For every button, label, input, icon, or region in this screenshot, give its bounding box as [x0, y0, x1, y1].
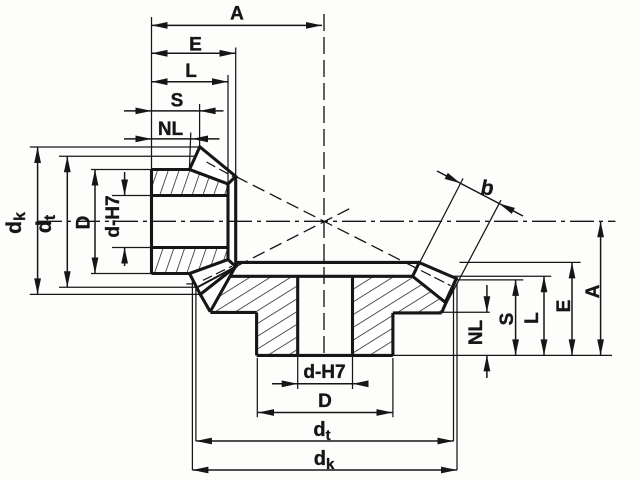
svg-text:NL: NL — [466, 319, 487, 345]
svg-text:E: E — [554, 300, 575, 313]
svg-text:D: D — [74, 216, 95, 230]
svg-text:d-H7: d-H7 — [303, 362, 345, 383]
svg-text:D: D — [318, 391, 332, 412]
svg-text:E: E — [189, 35, 202, 56]
svg-text:NL: NL — [158, 119, 184, 140]
svg-text:A: A — [230, 4, 244, 25]
svg-text:L: L — [522, 312, 543, 324]
svg-text:b: b — [481, 177, 494, 200]
svg-text:A: A — [583, 284, 604, 298]
svg-text:S: S — [497, 313, 518, 326]
svg-text:d-H7: d-H7 — [103, 195, 124, 237]
svg-text:L: L — [185, 61, 197, 82]
svg-text:S: S — [171, 91, 184, 112]
